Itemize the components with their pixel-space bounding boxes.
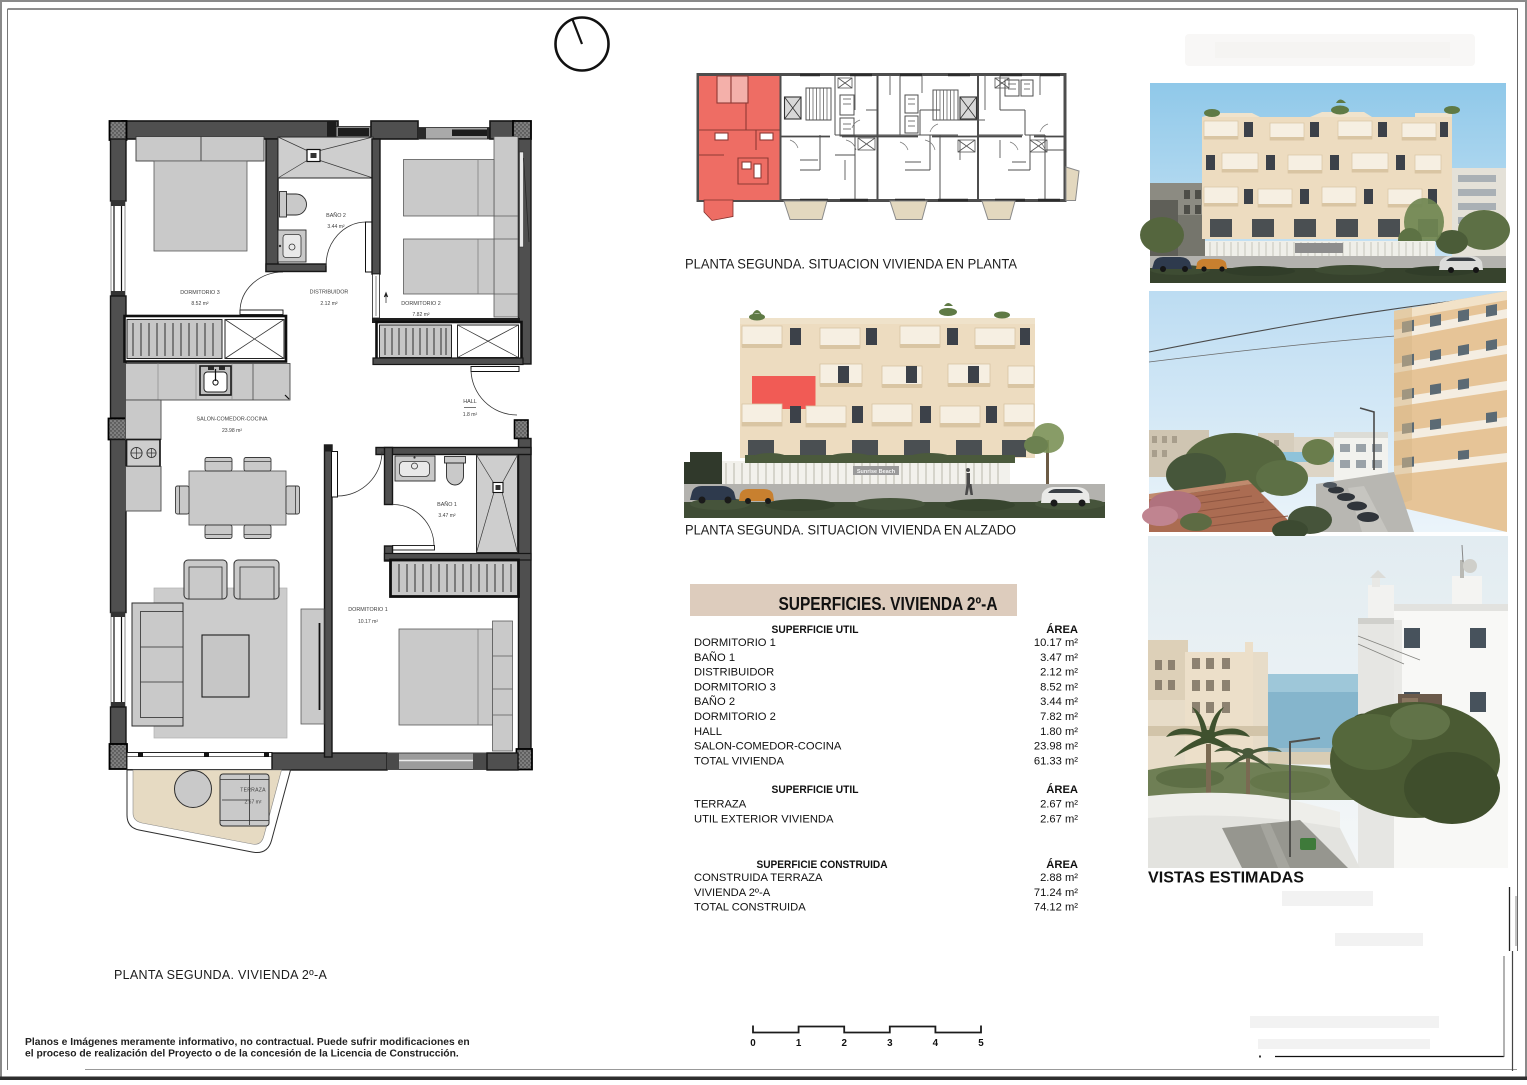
svg-text:3: 3	[887, 1038, 893, 1049]
svg-text:BAÑO 2: BAÑO 2	[694, 695, 735, 708]
svg-text:8.52 m²: 8.52 m²	[1040, 681, 1078, 693]
svg-text:UTIL EXTERIOR VIVIENDA: UTIL EXTERIOR VIVIENDA	[694, 813, 834, 825]
svg-text:BAÑO 1: BAÑO 1	[694, 651, 735, 664]
svg-text:TOTAL CONSTRUIDA: TOTAL CONSTRUIDA	[694, 902, 806, 914]
svg-text:SUPERFICIE UTIL: SUPERFICIE UTIL	[772, 624, 859, 636]
svg-text:74.12 m²: 74.12 m²	[1034, 902, 1078, 914]
svg-text:BAÑO 1: BAÑO 1	[437, 501, 457, 508]
svg-text:DISTRIBUIDOR: DISTRIBUIDOR	[310, 290, 349, 296]
svg-text:SUPERFICIES. VIVIENDA 2º-A: SUPERFICIES. VIVIENDA 2º-A	[779, 593, 998, 614]
svg-text:3.44 m²: 3.44 m²	[327, 224, 345, 230]
svg-text:2.12 m²: 2.12 m²	[1040, 667, 1078, 679]
svg-text:HALL: HALL	[463, 399, 477, 405]
svg-text:DORMITORIO 2: DORMITORIO 2	[401, 301, 440, 307]
svg-text:DORMITORIO 2: DORMITORIO 2	[694, 711, 776, 723]
svg-text:10.17 m²: 10.17 m²	[1034, 637, 1078, 649]
svg-text:1.8 m²: 1.8 m²	[463, 412, 478, 418]
svg-text:SUPERFICIE CONSTRUIDA: SUPERFICIE CONSTRUIDA	[757, 859, 888, 871]
svg-text:el proceso de realización del: el proceso de realización del Proyecto o…	[25, 1049, 459, 1060]
svg-text:DORMITORIO 1: DORMITORIO 1	[694, 637, 776, 649]
svg-text:61.33 m²: 61.33 m²	[1034, 755, 1078, 767]
svg-text:23.98 m²: 23.98 m²	[1034, 741, 1078, 753]
svg-text:DORMITORIO 3: DORMITORIO 3	[180, 290, 219, 296]
svg-text:VIVIENDA 2º-A: VIVIENDA 2º-A	[694, 887, 771, 899]
svg-text:ÁREA: ÁREA	[1046, 783, 1078, 796]
svg-text:4: 4	[933, 1038, 939, 1049]
svg-text:2.12 m²: 2.12 m²	[320, 301, 338, 307]
svg-text:5: 5	[978, 1038, 984, 1049]
svg-text:DORMITORIO 3: DORMITORIO 3	[694, 681, 776, 693]
svg-text:TERRAZA: TERRAZA	[240, 788, 266, 794]
svg-text:HALL: HALL	[694, 726, 722, 738]
svg-text:71.24 m²: 71.24 m²	[1034, 887, 1078, 899]
svg-text:PLANTA SEGUNDA. SITUACION VIVI: PLANTA SEGUNDA. SITUACION VIVIENDA EN PL…	[685, 257, 1017, 272]
svg-text:SALON-COMEDOR-COCINA: SALON-COMEDOR-COCINA	[197, 417, 268, 423]
svg-text:PLANTA SEGUNDA. VIVIENDA 2º-A: PLANTA SEGUNDA. VIVIENDA 2º-A	[114, 968, 327, 982]
svg-text:7.82 m²: 7.82 m²	[1040, 711, 1078, 723]
svg-text:BAÑO 2: BAÑO 2	[326, 212, 346, 219]
svg-text:SALON-COMEDOR-COCINA: SALON-COMEDOR-COCINA	[694, 741, 842, 753]
svg-text:8.52 m²: 8.52 m²	[191, 301, 209, 307]
svg-text:2.88 m²: 2.88 m²	[1040, 872, 1078, 884]
svg-text:2.67 m²: 2.67 m²	[1040, 799, 1078, 811]
svg-text:3.44 m²: 3.44 m²	[1040, 696, 1078, 708]
svg-text:2.67 m²: 2.67 m²	[1040, 813, 1078, 825]
svg-text:3.47 m²: 3.47 m²	[1040, 652, 1078, 664]
svg-text:2: 2	[841, 1038, 847, 1049]
svg-text:2.67 m²: 2.67 m²	[245, 800, 262, 806]
svg-text:ÁREA: ÁREA	[1046, 623, 1078, 636]
svg-text:TOTAL VIVIENDA: TOTAL VIVIENDA	[694, 755, 784, 767]
svg-text:10.17 m²: 10.17 m²	[358, 619, 378, 625]
svg-text:ÁREA: ÁREA	[1046, 858, 1078, 871]
svg-text:TERRAZA: TERRAZA	[694, 799, 747, 811]
svg-text:SUPERFICIE UTIL: SUPERFICIE UTIL	[772, 784, 859, 796]
svg-text:DISTRIBUIDOR: DISTRIBUIDOR	[694, 667, 774, 679]
svg-text:1.80 m²: 1.80 m²	[1040, 726, 1078, 738]
svg-text:CONSTRUIDA TERRAZA: CONSTRUIDA TERRAZA	[694, 872, 823, 884]
svg-text:0: 0	[750, 1038, 756, 1049]
svg-text:Planos e Imágenes meramente in: Planos e Imágenes meramente informativo,…	[25, 1037, 470, 1048]
svg-text:VISTAS ESTIMADAS: VISTAS ESTIMADAS	[1148, 870, 1304, 887]
svg-text:7.82 m²: 7.82 m²	[412, 312, 430, 318]
svg-text:23.98 m²: 23.98 m²	[222, 428, 242, 434]
svg-text:PLANTA SEGUNDA. SITUACION VIVI: PLANTA SEGUNDA. SITUACION VIVIENDA EN AL…	[685, 523, 1016, 538]
svg-text:1: 1	[796, 1038, 802, 1049]
svg-text:3.47 m²: 3.47 m²	[438, 513, 456, 519]
svg-text:DORMITORIO 1: DORMITORIO 1	[348, 607, 387, 613]
svg-text:Sunrise Beach: Sunrise Beach	[857, 469, 896, 475]
